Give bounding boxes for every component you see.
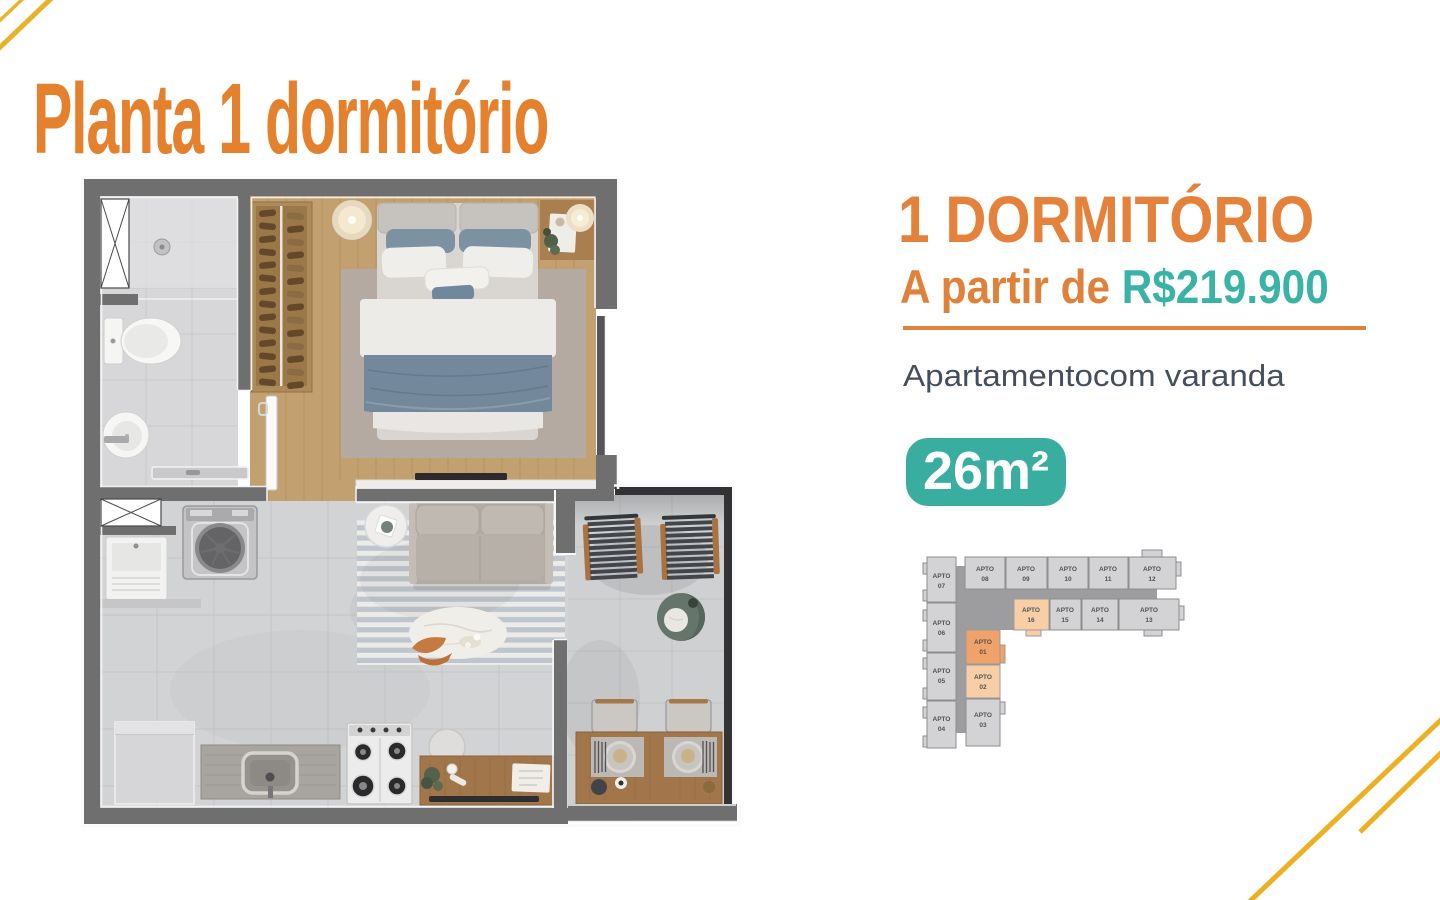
- svg-text:06: 06: [938, 630, 946, 637]
- svg-text:03: 03: [979, 722, 987, 729]
- svg-text:13: 13: [1145, 617, 1153, 624]
- svg-text:APTO: APTO: [933, 620, 951, 627]
- svg-text:APTO: APTO: [976, 566, 994, 573]
- svg-text:14: 14: [1096, 617, 1104, 624]
- svg-text:APTO: APTO: [1091, 607, 1109, 614]
- svg-text:APTO: APTO: [1140, 607, 1158, 614]
- svg-text:APTO: APTO: [933, 668, 951, 675]
- svg-text:10: 10: [1064, 576, 1072, 583]
- svg-text:16: 16: [1027, 617, 1035, 624]
- svg-text:11: 11: [1105, 576, 1112, 583]
- svg-text:APTO: APTO: [974, 712, 992, 719]
- svg-text:08: 08: [981, 576, 989, 583]
- svg-text:APTO: APTO: [974, 639, 992, 646]
- svg-text:APTO: APTO: [1099, 566, 1117, 573]
- svg-text:05: 05: [938, 678, 946, 685]
- svg-text:APTO: APTO: [1056, 607, 1074, 614]
- svg-text:APTO: APTO: [933, 573, 951, 580]
- svg-text:APTO: APTO: [933, 716, 951, 723]
- svg-text:01: 01: [979, 649, 987, 656]
- svg-text:12: 12: [1148, 576, 1156, 583]
- svg-text:APTO: APTO: [1022, 607, 1040, 614]
- svg-text:APTO: APTO: [1017, 566, 1035, 573]
- svg-text:07: 07: [938, 583, 946, 590]
- svg-text:02: 02: [979, 684, 987, 691]
- svg-text:15: 15: [1061, 617, 1069, 624]
- svg-text:APTO: APTO: [1059, 566, 1077, 573]
- svg-text:04: 04: [938, 726, 946, 733]
- svg-text:APTO: APTO: [974, 674, 992, 681]
- svg-text:09: 09: [1022, 576, 1030, 583]
- svg-text:APTO: APTO: [1143, 566, 1161, 573]
